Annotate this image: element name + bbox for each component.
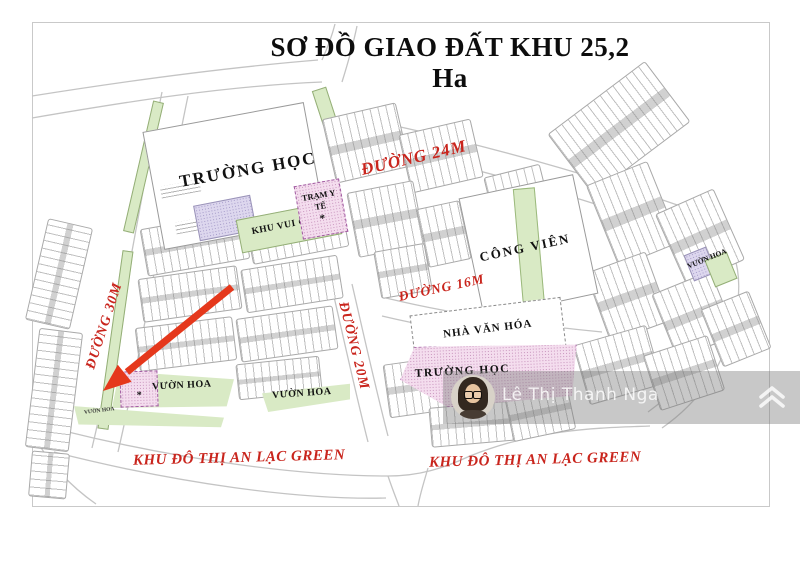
land-allocation-map: TRƯỜNG HỌC KHU VUI CHƠI TRẠM Y TẾ * CÔNG… <box>0 0 800 566</box>
location-arrow <box>0 0 800 566</box>
